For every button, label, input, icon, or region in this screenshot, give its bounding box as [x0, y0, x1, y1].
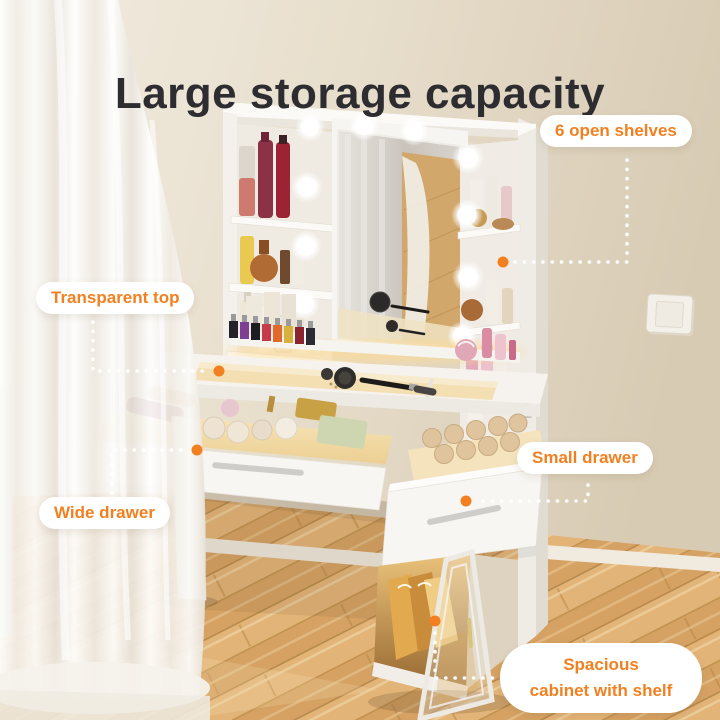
connector-spacious-cabinet [430, 616, 503, 679]
product-infographic: Large storage capacity 6 open shelves Tr… [0, 0, 720, 720]
callout-spacious-cabinet: Spacious cabinet with shelf [500, 643, 702, 713]
callout-open-shelves: 6 open shelves [540, 115, 692, 147]
connector-transparent-top [93, 322, 225, 377]
callout-connectors [0, 0, 720, 720]
callout-wide-drawer: Wide drawer [39, 497, 170, 529]
callout-spacious-cabinet-line1: Spacious [512, 652, 690, 678]
callout-small-drawer: Small drawer [517, 442, 653, 474]
callout-spacious-cabinet-line2: cabinet with shelf [512, 678, 690, 704]
connector-small-drawer [461, 485, 589, 507]
connector-open-shelves [498, 160, 628, 268]
callout-transparent-top: Transparent top [36, 282, 194, 314]
connector-wide-drawer [112, 445, 203, 494]
